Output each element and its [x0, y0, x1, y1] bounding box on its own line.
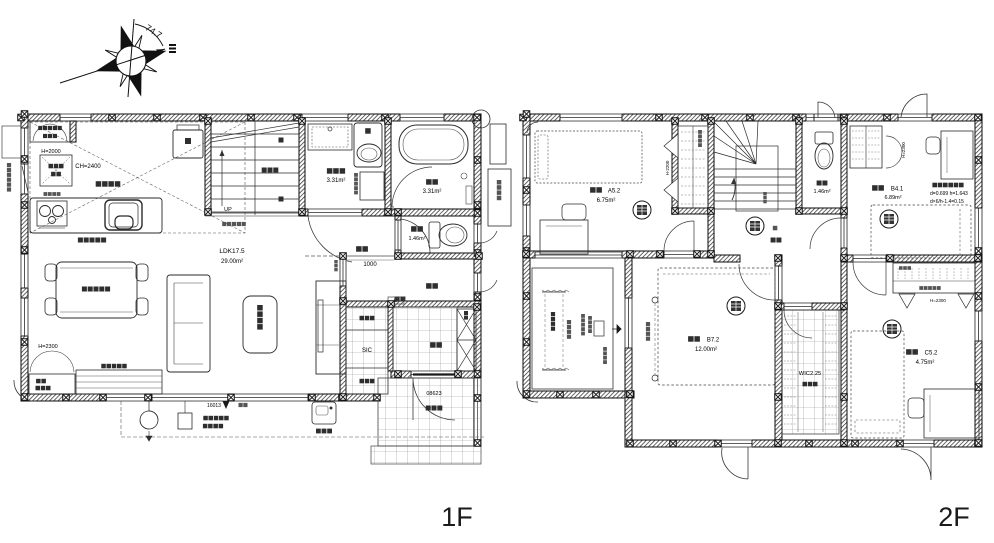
svg-text:A5.2: A5.2 [608, 189, 621, 195]
svg-text:4.75m²: 4.75m² [916, 360, 935, 366]
svg-text:LDK17.5: LDK17.5 [219, 248, 245, 255]
svg-text:SIC: SIC [362, 348, 373, 354]
svg-text:UP: UP [224, 207, 232, 213]
svg-text:6.89m²: 6.89m² [884, 195, 901, 201]
svg-text:H=2300: H=2300 [930, 298, 946, 303]
svg-text:B4.1: B4.1 [891, 187, 904, 193]
svg-text:d×6/h-1.4=0.15: d×6/h-1.4=0.15 [930, 199, 964, 205]
svg-text:1000: 1000 [363, 262, 377, 268]
svg-text:H=2300: H=2300 [901, 142, 906, 158]
svg-text:3.31m²: 3.31m² [327, 178, 346, 184]
svg-text:29.00m²: 29.00m² [221, 259, 243, 265]
svg-text:1.46m²: 1.46m² [408, 236, 425, 242]
svg-text:1.46m²: 1.46m² [813, 189, 830, 195]
svg-text:08623: 08623 [426, 391, 441, 397]
svg-text:CH=2400: CH=2400 [75, 164, 101, 170]
svg-text:H-2200: H-2200 [665, 160, 670, 175]
svg-text:B7.2: B7.2 [707, 338, 720, 344]
svg-text:12.00m²: 12.00m² [695, 347, 717, 353]
svg-text:2F: 2F [938, 502, 970, 532]
svg-text:H=2300: H=2300 [38, 344, 57, 350]
svg-text:H=2000: H=2000 [41, 149, 60, 155]
svg-text:WIC2.25: WIC2.25 [799, 371, 822, 377]
svg-text:6.75m²: 6.75m² [597, 198, 616, 204]
svg-text:3.31m²: 3.31m² [423, 189, 442, 195]
svg-text:16013: 16013 [207, 403, 221, 409]
svg-text:1F: 1F [441, 502, 473, 532]
svg-text:C5.2: C5.2 [925, 351, 938, 357]
svg-text:d=0.699 h=1.643: d=0.699 h=1.643 [930, 191, 968, 197]
